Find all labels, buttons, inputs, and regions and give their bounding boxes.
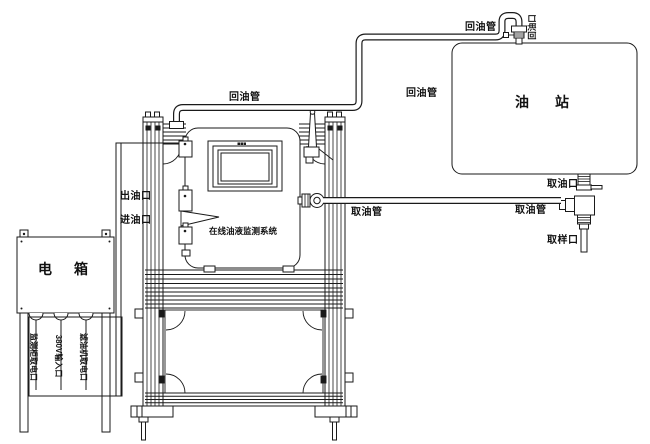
return-pipe-cabinet-fitting (170, 122, 184, 129)
corner-brace-tl (166, 311, 185, 330)
corner-brace-bl (166, 374, 185, 393)
inlet-port-label: 进油口 (120, 216, 152, 226)
intake-pipe-label-1: 取油管 (351, 208, 383, 218)
electric-box-title: 电箱 (38, 262, 110, 276)
oil-station-title: 油站 (515, 95, 595, 109)
frame-mid-rail (145, 296, 343, 308)
return-pipe-label-3: 回油管 (465, 23, 497, 33)
corner-brace-tr (303, 311, 322, 330)
inlet-port-fitting (179, 227, 192, 244)
return-pipe-label-1: 回油管 (229, 93, 261, 103)
sampling-port-label: 取样口 (547, 236, 579, 246)
sampling-tube (581, 229, 587, 252)
cable-label-filter: 滤油机取电口 (79, 333, 87, 381)
outlet-port-label: 出油口 (120, 192, 152, 202)
cable-label-frame (29, 317, 122, 396)
frame-bottom-rail (145, 393, 343, 406)
conduit-duct (116, 143, 121, 396)
return-pipe-label-2: 回油管 (406, 89, 438, 99)
fitting-body (575, 196, 595, 215)
frame-feet (131, 406, 357, 440)
return-port-label: 回油口 (528, 14, 537, 40)
intake-valve-connector (298, 194, 324, 208)
intake-port-label: 取油口 (547, 180, 579, 190)
return-port-valve (504, 26, 527, 44)
outlet-port-fitting (179, 190, 192, 211)
cabinet-body (185, 128, 300, 268)
frame-lower-compartment (159, 310, 326, 393)
diagram-canvas: 回油管 回油管 回油管 回油口 油站 取油口 取油管 取样口 取油管 在线油液监… (0, 0, 650, 444)
oil-station-tank (452, 43, 637, 252)
system-name-label: 在线油液监测系统 (209, 227, 277, 236)
frame-left-post (143, 112, 163, 406)
intake-port-pin (591, 186, 602, 190)
intake-pipe-label-2: 取油管 (515, 206, 547, 216)
monitor-cabinet (179, 110, 333, 272)
frame-shelf-rail (145, 270, 343, 292)
cable-label-380v: 380V输入口 (54, 335, 62, 378)
corner-brace-br (303, 374, 322, 393)
diagram-linework (0, 0, 650, 444)
cable-label-monitor: 监测柜取电口 (29, 333, 37, 381)
